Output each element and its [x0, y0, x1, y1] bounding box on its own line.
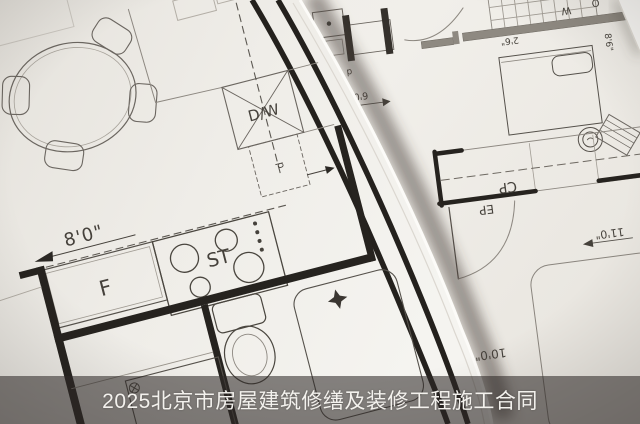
- blueprint-photo: W O 2'6" 8'6": [0, 0, 640, 424]
- caption-bar: 2025北京市房屋建筑修缮及装修工程施工合同: [0, 376, 640, 424]
- vignette-overlay: [0, 0, 640, 424]
- blueprint-drawing: W O 2'6" 8'6": [0, 0, 640, 424]
- caption-text: 2025北京市房屋建筑修缮及装修工程施工合同: [102, 385, 538, 415]
